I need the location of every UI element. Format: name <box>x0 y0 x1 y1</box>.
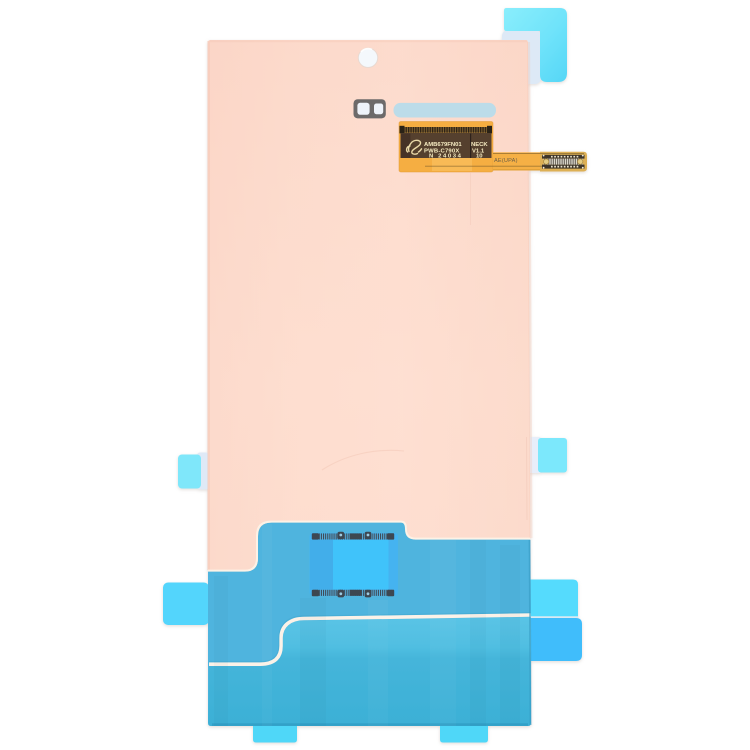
svg-text:NECK: NECK <box>471 142 488 148</box>
svg-text:N 24034: N 24034 <box>429 154 462 160</box>
svg-text:10: 10 <box>476 154 483 160</box>
svg-text:AE(UPA): AE(UPA) <box>494 158 518 164</box>
svg-text:AMB679FN01: AMB679FN01 <box>424 142 462 148</box>
